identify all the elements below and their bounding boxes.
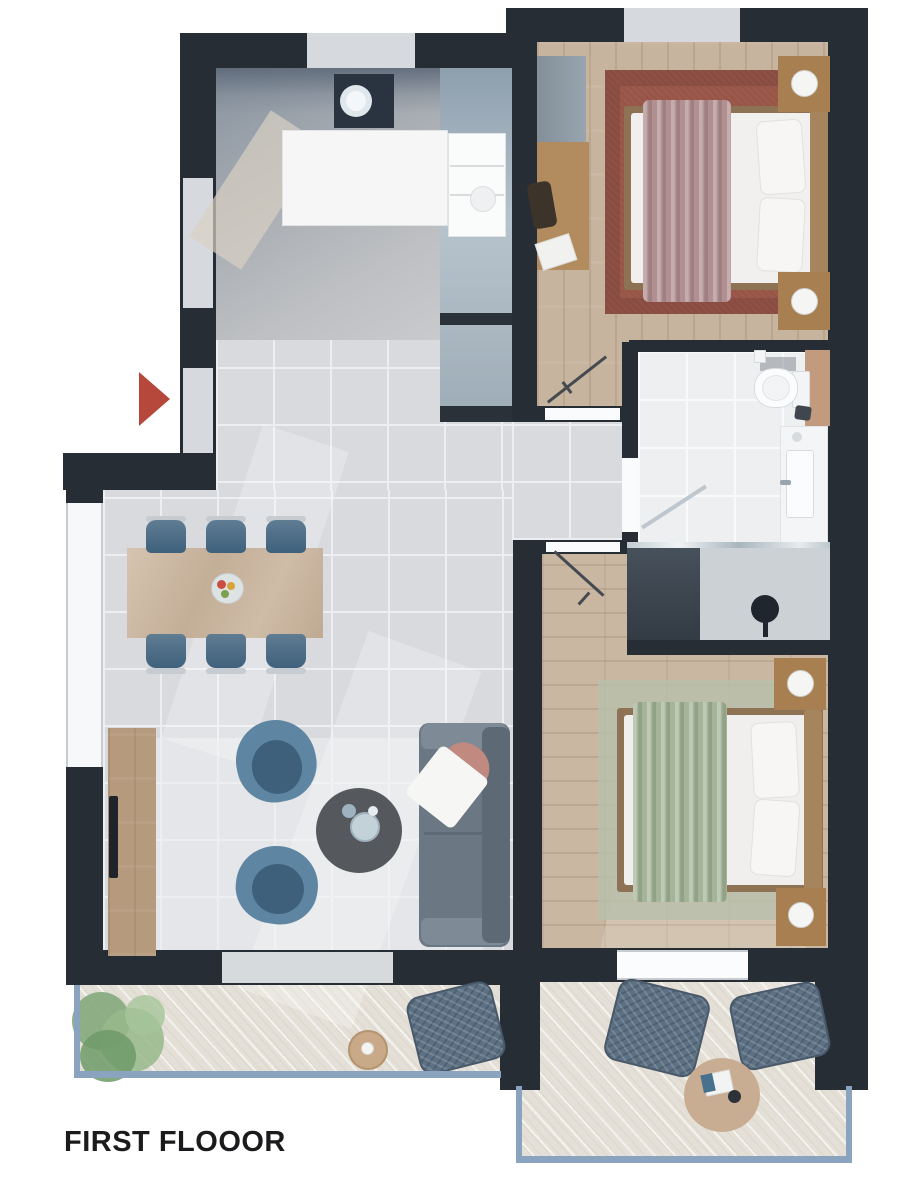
lamp-2a (787, 670, 814, 697)
dining-chair-top-3 (266, 520, 306, 553)
bed1-headboard (810, 108, 828, 288)
toilet-roll (754, 350, 766, 363)
railing-right-balcony-right (846, 1086, 852, 1162)
dining-chair-bottom-1 (146, 634, 186, 668)
lamp-1b (791, 288, 818, 315)
lamp-2b (788, 902, 814, 928)
bed2-headboard (804, 710, 822, 890)
lamp-1a (791, 70, 818, 97)
shower-glass-partition (627, 542, 830, 548)
dining-chair-bottom-3 (266, 634, 306, 668)
cabinet-divider-upper (440, 313, 512, 325)
toilet-seat (762, 375, 790, 401)
balcony-right-cup (728, 1090, 741, 1103)
passage-floor (512, 422, 638, 540)
kitchen-island (282, 130, 448, 226)
floor-plan-label: FIRST FLOOOR (64, 1126, 286, 1159)
bedroom1-wardrobe (537, 56, 586, 142)
coffee-table-bottle (342, 804, 356, 818)
dining-chair-back-6 (266, 668, 306, 674)
fridge-bowl (470, 186, 496, 212)
bedroom1-door-threshold (545, 408, 620, 420)
fruit-green (221, 590, 229, 598)
railing-left-balcony-side (74, 985, 80, 1077)
kitchen-cabinet-column (440, 68, 512, 412)
vanity-faucet (780, 480, 791, 485)
railing-right-balcony-left (516, 1086, 522, 1162)
window-left-lower (66, 503, 103, 767)
wall-kitchen-bedroom1 (512, 33, 537, 422)
dining-chair-back-5 (206, 668, 246, 674)
vanity-soap (792, 432, 802, 442)
cabinet-divider-lower (440, 406, 512, 422)
window-top-left (307, 33, 415, 68)
railing-left-balcony-bottom (74, 1071, 501, 1078)
bed1-blanket (643, 100, 731, 302)
dining-chair-bottom-2 (206, 634, 246, 668)
balcony-right-rug (684, 1058, 760, 1132)
bedroom2-wardrobe (627, 548, 700, 640)
bed1-pillow-bottom (756, 197, 806, 273)
balcony-left-door-threshold (222, 952, 393, 983)
fruit-red (217, 580, 226, 589)
entrance-arrow-icon (139, 372, 170, 426)
balcony-plant-4 (125, 995, 165, 1035)
kitchen-sink-basin (346, 91, 366, 111)
floor-plan: FIRST FLOOOR (0, 0, 923, 1200)
bed1-pillow-top (755, 118, 806, 195)
balcony-left-cup (361, 1042, 374, 1055)
dining-chair-top-1 (146, 520, 186, 553)
bed2-blanket (633, 702, 727, 902)
coffee-table-glass (368, 806, 378, 816)
fridge-shelf-line-1 (450, 165, 504, 167)
window-entrance (183, 368, 213, 453)
railing-right-balcony-bottom (516, 1156, 852, 1163)
bathroom-door-opening (622, 458, 638, 532)
bathroom-bin (794, 405, 812, 421)
dining-chair-top-2 (206, 520, 246, 553)
dining-chair-back-4 (146, 668, 186, 674)
tv-screen (109, 796, 118, 878)
window-top-right (624, 8, 740, 42)
coffee-table-tray (350, 812, 380, 842)
bed2-pillow-top (750, 721, 800, 799)
bed2-pillow-bottom (749, 798, 800, 877)
wall-right (828, 42, 868, 960)
fruit-yellow (227, 582, 235, 590)
bedroom2-door-threshold (546, 542, 620, 552)
wall-bathroom-top (629, 340, 828, 352)
wall-mid-left (63, 453, 216, 490)
wall-shower-bottom (627, 638, 830, 655)
shower-drain (751, 595, 779, 623)
window-bedroom2 (617, 950, 748, 980)
wall-living-right (513, 540, 542, 955)
fridge-unit (448, 133, 506, 237)
sofa-cushion-divider (424, 832, 482, 835)
shower-hose (763, 621, 768, 637)
